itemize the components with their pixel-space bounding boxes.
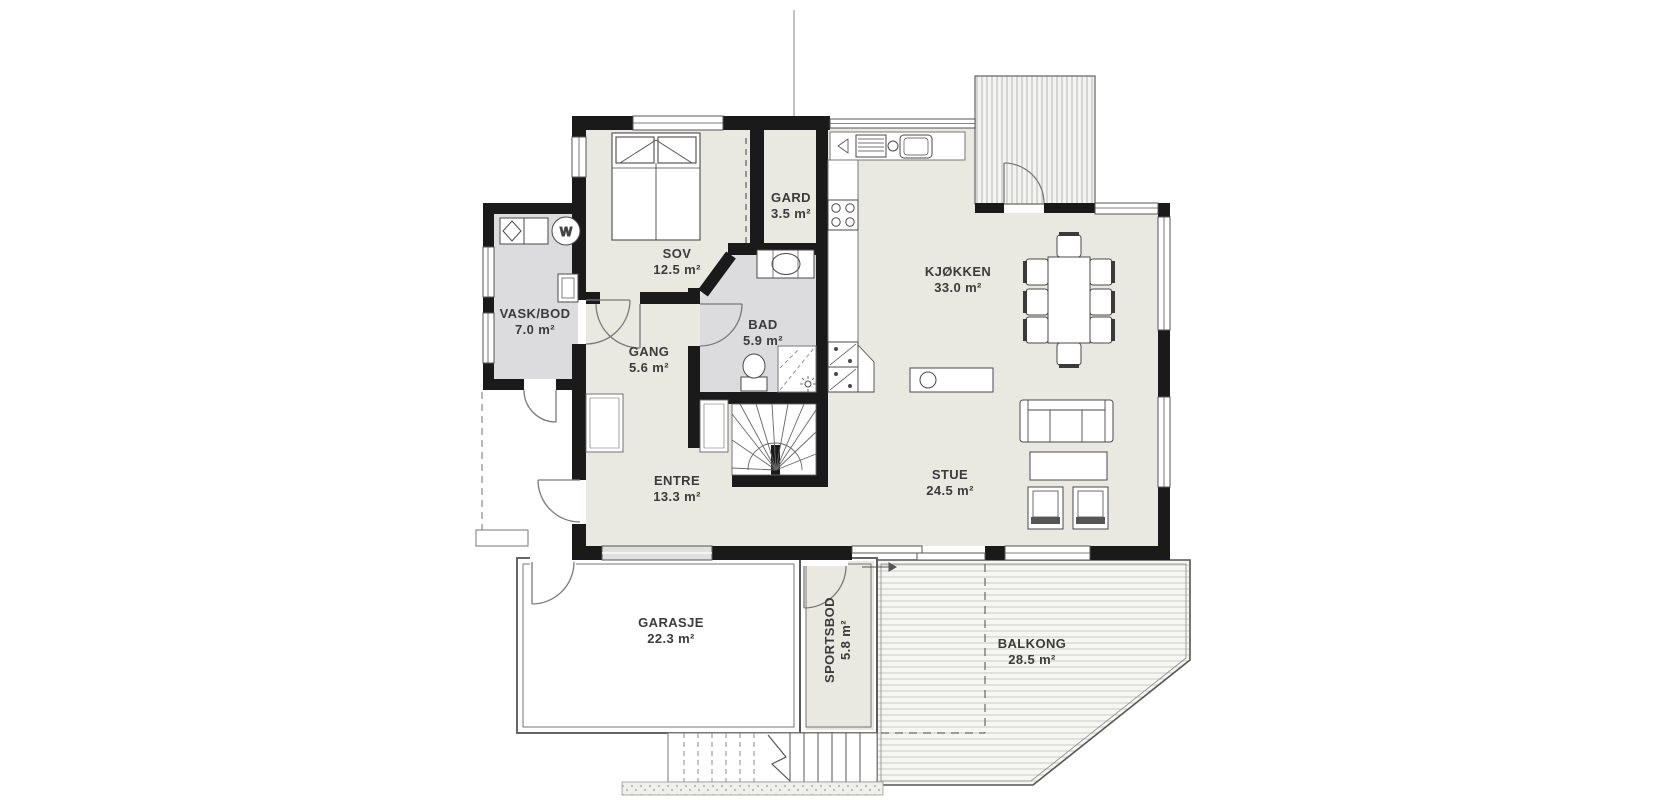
- counter-unit: [524, 218, 548, 244]
- window-bedroom-north: [633, 116, 723, 130]
- dining-chair-icon: [1023, 259, 1048, 285]
- room-label-kjokken: KJØKKEN 33.0 m²: [925, 264, 991, 296]
- floor-plan-page: W: [0, 0, 1670, 800]
- entry-porch: [975, 76, 1095, 204]
- dining-chair-icon: [1057, 232, 1081, 257]
- outdoor-stairs: [622, 733, 883, 795]
- sink-unit-icon: [500, 218, 524, 244]
- kitchen-island-icon: [910, 368, 993, 392]
- dining-chair-icon: [1023, 289, 1048, 315]
- shower-icon: [778, 346, 816, 392]
- kitchen-glass-band: [830, 119, 975, 128]
- door-main-entrance: [538, 480, 580, 522]
- room-label-garasje: GARASJE 22.3 m²: [638, 615, 704, 647]
- armchair-icon: [1073, 487, 1108, 529]
- washer-label: W: [560, 224, 573, 239]
- window-west-upper: [572, 137, 586, 177]
- dining-chair-icon: [1057, 343, 1081, 368]
- entry-step: [476, 530, 528, 546]
- toilet-icon: [741, 354, 767, 391]
- stove-icon: [828, 200, 858, 230]
- door-laundry-exterior: [524, 390, 556, 422]
- room-label-sportsbod: SPORTSBOD 5.8 m²: [822, 597, 854, 683]
- vanity-sink-icon: [757, 250, 814, 278]
- gravel-strip: [622, 782, 883, 795]
- room-label-entre: ENTRE 13.3 m²: [653, 473, 701, 505]
- room-label-gang: GANG 5.6 m²: [629, 344, 670, 376]
- room-label-gard: GARD 3.5 m²: [771, 190, 811, 222]
- dining-chair-icon: [1090, 289, 1115, 315]
- room-label-balkong: BALKONG 28.5 m²: [998, 636, 1067, 668]
- washer-icon: W: [552, 217, 580, 245]
- laundry-cabinet-icon: [558, 274, 578, 302]
- window-east-2: [1158, 397, 1170, 487]
- room-label-stue: STUE 24.5 m²: [926, 467, 974, 499]
- bed-icon: [612, 133, 700, 240]
- dining-chair-icon: [1023, 317, 1048, 343]
- courtyard: [476, 392, 528, 546]
- dining-chair-icon: [1090, 259, 1115, 285]
- door-garage: [532, 562, 574, 604]
- window-north-east: [1095, 203, 1158, 214]
- room-label-sov: SOV 12.5 m²: [653, 246, 701, 278]
- window-south-right: [1005, 546, 1090, 560]
- window-laundry-2: [483, 313, 494, 363]
- sofa-icon: [1020, 400, 1113, 442]
- balcony: [877, 560, 1190, 785]
- window-east-1: [1158, 217, 1170, 330]
- coffee-table-icon: [1030, 452, 1107, 480]
- garage-door-opening: [530, 554, 576, 566]
- room-label-bad: BAD 5.9 m²: [743, 317, 783, 349]
- kitchen-counter-left: [828, 160, 858, 342]
- room-label-vask-bod: VASK/BOD 7.0 m²: [500, 306, 571, 338]
- window-laundry-1: [483, 247, 494, 297]
- dining-table-icon: [1048, 257, 1090, 343]
- armchair-icon: [1028, 487, 1063, 529]
- window-south-garage: [602, 546, 712, 560]
- dining-chair-icon: [1090, 317, 1115, 343]
